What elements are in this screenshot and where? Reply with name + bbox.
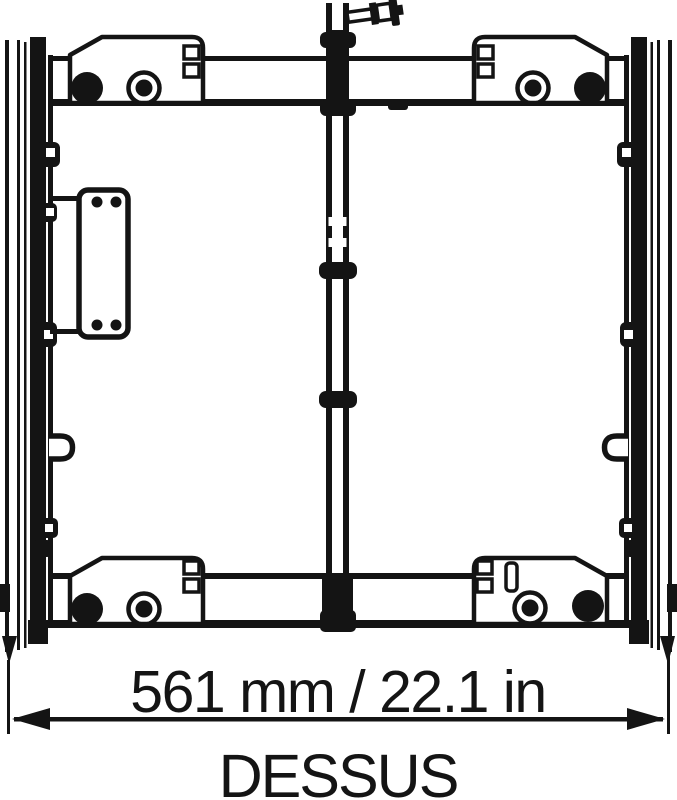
top-left-bracket [70, 37, 203, 104]
speaker-top-view-drawing: 561 mm / 22.1 in DESSUS [0, 0, 677, 800]
rail-line [657, 40, 660, 650]
mount-hole [184, 579, 199, 592]
bar-collar [320, 100, 356, 116]
clamp-hole [624, 330, 633, 339]
rail-line [5, 40, 9, 652]
clamp-hole [45, 524, 53, 532]
slot-hole [506, 563, 517, 591]
body-outline [28, 56, 649, 628]
mount-hole [184, 64, 199, 77]
latch-mark [388, 101, 408, 110]
mount-hole [477, 579, 492, 592]
rail-foot [28, 628, 48, 644]
pin-center [522, 600, 539, 617]
pin-center [525, 80, 542, 97]
rivet [71, 72, 103, 104]
view-title: DESSUS [219, 742, 458, 800]
extension-line [667, 645, 670, 734]
extension-line [7, 660, 10, 734]
bar-collar [319, 262, 357, 279]
rivet [574, 72, 606, 104]
pin-center [136, 601, 153, 618]
panel-screw [92, 320, 103, 331]
side-handle [605, 436, 629, 459]
rivet [71, 593, 103, 625]
arrowhead-right [627, 708, 665, 730]
clamp-hole [46, 148, 55, 157]
left-rail [0, 37, 53, 664]
mount-knob [624, 540, 645, 557]
side-tab [0, 584, 10, 612]
panel-link-line [50, 329, 81, 334]
dimension-label: 561 mm / 22.1 in [130, 659, 545, 725]
bottom-right-bracket [474, 558, 607, 624]
bar-collar [320, 32, 356, 48]
rail-line [651, 42, 654, 648]
rail-line [24, 42, 27, 648]
panel-screw [92, 197, 103, 208]
mount-hole [184, 46, 199, 59]
locking-screw [346, 0, 406, 32]
connector-panel [50, 190, 128, 337]
mount-knob [32, 540, 53, 557]
technical-drawing-page: 561 mm / 22.1 in DESSUS [0, 0, 677, 800]
pin-center [136, 80, 153, 97]
mount-hole [477, 561, 492, 574]
clamp-hole [624, 524, 632, 532]
center-bar [319, 3, 408, 632]
mount-hole [184, 561, 199, 574]
clamp-hole [46, 208, 54, 216]
right-rail [624, 37, 677, 664]
rail-line [668, 40, 672, 652]
side-tab [667, 584, 677, 612]
bar-joint-gap [329, 238, 347, 247]
mount-hole [478, 64, 493, 77]
rail-foot [629, 628, 649, 644]
bottom-left-bracket [70, 558, 203, 625]
top-right-bracket [474, 37, 607, 104]
arrowhead-left [12, 708, 50, 730]
rivet [572, 590, 604, 622]
dimension-annotation: 561 mm / 22.1 in [7, 645, 670, 734]
panel-screw [111, 197, 122, 208]
bar-collar [319, 391, 357, 408]
panel-plate [79, 190, 128, 337]
side-handle [49, 436, 73, 459]
bar-joint-gap [329, 217, 347, 226]
mount-hole [478, 46, 493, 59]
clamp-hole [622, 148, 631, 157]
rail-spike [2, 636, 17, 664]
bar-foot [320, 610, 356, 632]
panel-screw [111, 320, 122, 331]
rail-line [17, 40, 20, 650]
